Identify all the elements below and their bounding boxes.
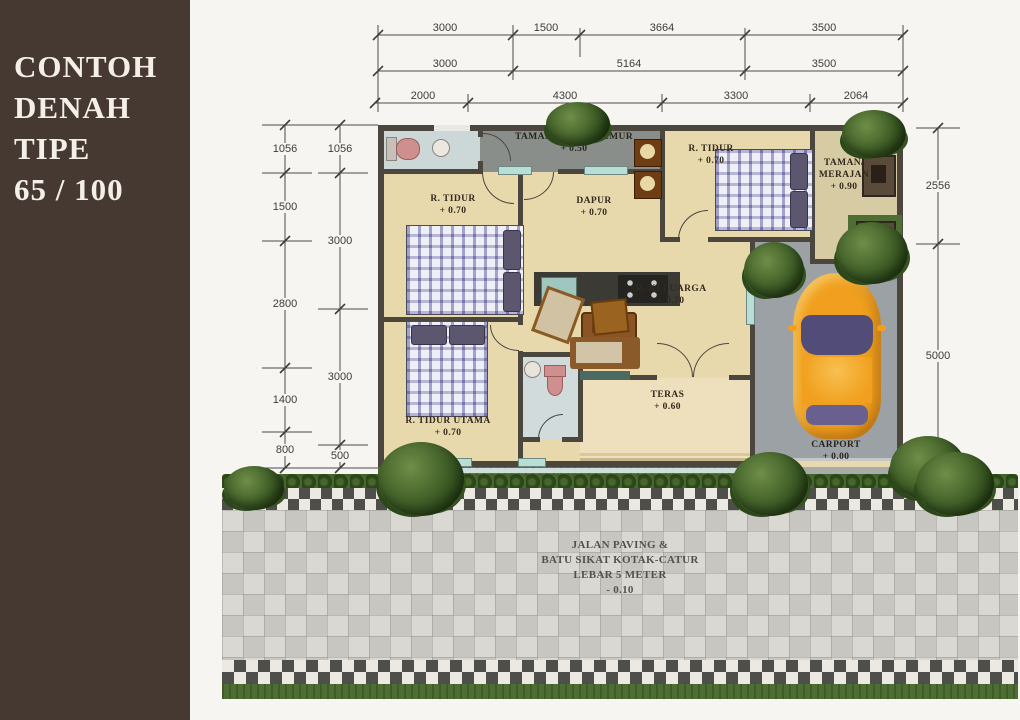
dim-label: 2800 — [271, 298, 299, 310]
dim-label: 2000 — [411, 90, 435, 102]
sink — [524, 361, 541, 378]
teras-step — [580, 453, 752, 456]
paving-line-1: JALAN PAVING & — [420, 538, 820, 553]
window — [434, 125, 470, 131]
room-name-2: MERAJAN — [814, 169, 874, 181]
tree — [744, 242, 804, 298]
room-label-tidur1: R. TIDUR + 0.70 — [408, 193, 498, 217]
car — [793, 273, 881, 439]
room-label-tidur-utama: R. TIDUR UTAMA + 0.70 — [396, 415, 500, 439]
room-level: + 0.90 — [814, 181, 874, 193]
pillow — [411, 325, 447, 345]
wall — [897, 125, 903, 467]
dim-label: 1500 — [534, 22, 558, 34]
dim-label: 3500 — [812, 22, 836, 34]
room-name: DAPUR — [554, 195, 634, 207]
room-label-carport: CARPORT + 0.00 — [786, 439, 886, 463]
pillow — [449, 325, 485, 345]
dim-label: 5000 — [924, 350, 952, 362]
dim-label: 800 — [274, 444, 296, 456]
dim-label: 3000 — [433, 58, 457, 70]
grass-verge — [222, 684, 1018, 699]
dim-label: 2064 — [844, 90, 868, 102]
tree — [916, 452, 994, 516]
floor-plan: TAMAN, RUANG JEMUR + 0.50 R. TIDUR + 0.7… — [378, 125, 903, 467]
dim-label: 4300 — [553, 90, 577, 102]
washer — [634, 171, 662, 199]
window — [584, 166, 628, 175]
shrub — [224, 466, 284, 510]
door-arc — [693, 343, 729, 377]
paving-line-2: BATU SIKAT KOTAK-CATUR — [420, 553, 820, 568]
room-level: + 0.60 — [625, 401, 710, 413]
bed — [406, 321, 488, 417]
dim-label: 1056 — [326, 143, 354, 155]
room-name: R. TIDUR UTAMA — [396, 415, 500, 427]
tree — [378, 442, 464, 516]
car-windshield — [801, 315, 873, 355]
car-mirror — [877, 325, 886, 331]
dim-label: 2556 — [924, 180, 952, 192]
car-rear-window — [806, 405, 868, 425]
door-arc — [657, 343, 693, 377]
dim-label: 3664 — [650, 22, 674, 34]
door-arc — [678, 210, 708, 240]
checker-band-top — [222, 488, 1018, 510]
sink — [432, 139, 450, 157]
paving-caption: JALAN PAVING & BATU SIKAT KOTAK-CATUR LE… — [420, 538, 820, 598]
wall — [378, 125, 384, 467]
dim-label: 3000 — [433, 22, 457, 34]
sofa-cushion — [576, 342, 622, 363]
room-label-teras: TERAS + 0.60 — [625, 389, 710, 413]
paving-line-4: - 0.10 — [420, 583, 820, 598]
room-name: R. TIDUR — [408, 193, 498, 205]
door-arc — [490, 325, 519, 351]
wall — [518, 437, 540, 442]
room-label-tidur2: R. TIDUR + 0.70 — [668, 143, 754, 167]
wall — [729, 375, 752, 380]
pillow — [503, 230, 521, 270]
pillow — [790, 153, 808, 190]
armchair — [590, 298, 629, 336]
wall — [660, 237, 680, 242]
room-name: R. TIDUR — [668, 143, 754, 155]
dim-label: 3300 — [724, 90, 748, 102]
door-arc — [524, 172, 554, 200]
room-name: CARPORT — [786, 439, 886, 451]
wall — [518, 351, 523, 461]
washer-door — [640, 176, 655, 191]
coffee-table — [580, 371, 630, 380]
wall — [384, 169, 482, 174]
car-mirror — [788, 325, 797, 331]
tree — [836, 222, 908, 284]
checker-band-bottom — [222, 660, 1018, 684]
wall — [562, 437, 583, 442]
room-level: + 0.00 — [786, 451, 886, 463]
room-level: + 0.70 — [626, 295, 716, 307]
dim-label: 1056 — [271, 143, 299, 155]
room-name: TERAS — [625, 389, 710, 401]
room-label-dapur: DAPUR + 0.70 — [554, 195, 634, 219]
room-label-keluarga: R. KELUARGA + 0.70 — [626, 283, 716, 307]
tree — [546, 102, 610, 146]
room-level: + 0.70 — [554, 207, 634, 219]
tree — [732, 452, 808, 516]
dim-label: 3000 — [326, 371, 354, 383]
window — [518, 458, 546, 467]
screenshot-root: CONTOH DENAH TIPE 65 / 100 3000 1500 366… — [0, 0, 1020, 720]
room-name: TAMAN/ — [814, 157, 874, 169]
pillow — [790, 191, 808, 228]
car-roof — [802, 357, 872, 403]
room-label-taman-merajan: TAMAN/ MERAJAN + 0.90 — [814, 157, 874, 193]
room-level: + 0.70 — [668, 155, 754, 167]
bed — [406, 225, 524, 315]
dim-label: 3500 — [812, 58, 836, 70]
pillow — [503, 272, 521, 312]
room-level: + 0.70 — [396, 427, 500, 439]
dim-label: 3000 — [326, 235, 354, 247]
room-level: + 0.70 — [408, 205, 498, 217]
wall — [708, 237, 812, 242]
toilet-bowl — [547, 376, 563, 396]
room-name: R. KELUARGA — [626, 283, 716, 295]
toilet-bowl — [396, 138, 420, 160]
dim-label: 1500 — [271, 201, 299, 213]
paving-line-3: LEBAR 5 METER — [420, 568, 820, 583]
sofa — [570, 337, 640, 369]
dim-label: 500 — [329, 450, 351, 462]
dim-label: 5164 — [617, 58, 641, 70]
tree — [842, 110, 906, 158]
dim-label: 1400 — [271, 394, 299, 406]
